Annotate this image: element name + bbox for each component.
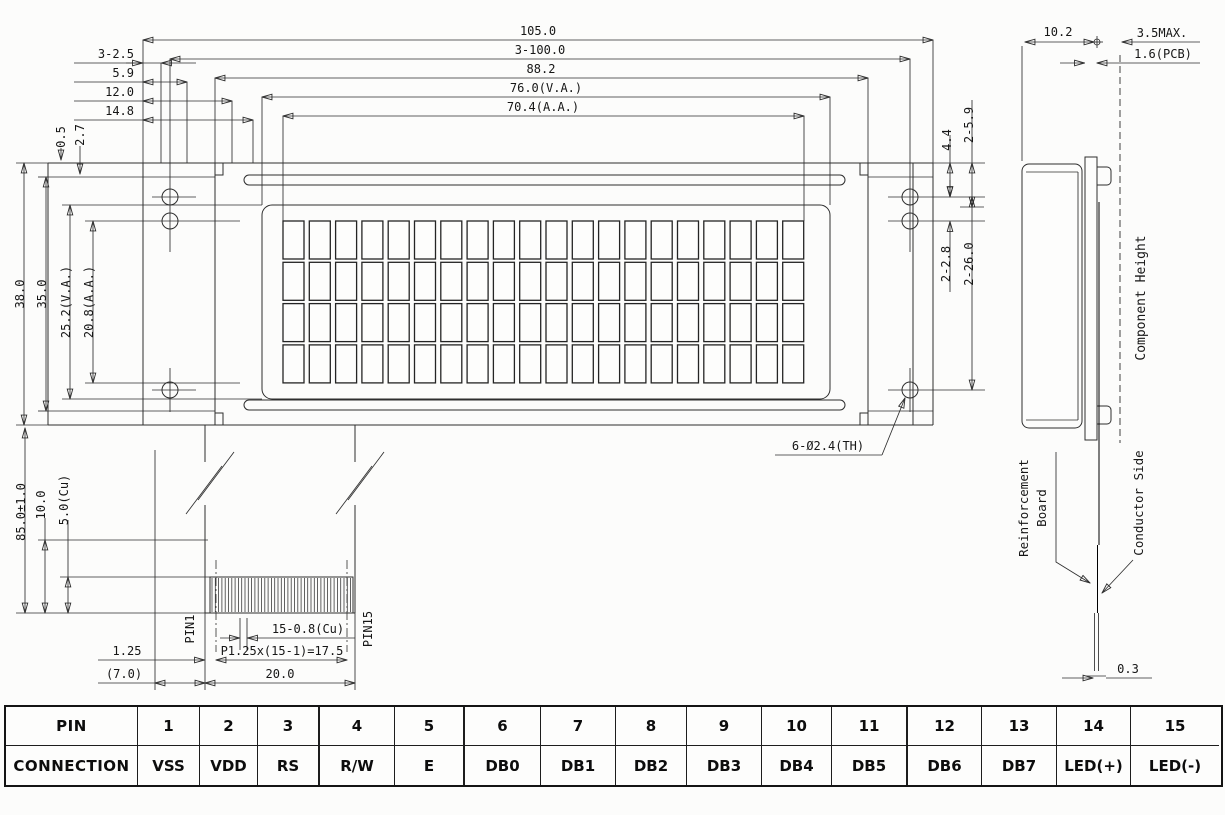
connection-name: LED(-) <box>1131 746 1219 785</box>
pin-connection-table: PIN 1 2 3 4 5 6 7 8 9 10 11 12 13 14 15 … <box>4 705 1223 787</box>
frame-slot-bottom <box>244 400 845 410</box>
dim-hole-span: 3-100.0 <box>515 43 566 57</box>
dim-tail-width: 20.0 <box>266 667 295 681</box>
dim-conductor-width: 15-0.8(Cu) <box>272 622 344 636</box>
pin-number: 14 <box>1057 707 1131 746</box>
side-view: 10.2 3.5MAX. 1.6(PCB) Component Height R… <box>1016 25 1200 678</box>
break-mark <box>348 452 384 500</box>
pin-number: 9 <box>687 707 762 746</box>
lcd-module-drawing: 105.0 3-100.0 88.2 76.0(V.A.) 70.4(A.A.)… <box>0 0 1225 706</box>
dim-viewing-area-width: 76.0(V.A.) <box>510 81 582 95</box>
pin-number: 1 <box>138 707 200 746</box>
conductor-leader <box>1102 560 1133 593</box>
connection-name: DB2 <box>616 746 687 785</box>
left-edge-dimensions: 3-2.5 5.9 12.0 14.8 0.5 2.7 <box>54 47 253 174</box>
dim-edge-14-8: 14.8 <box>105 104 134 118</box>
dim-hole-edge-offset: 3-2.5 <box>98 47 134 61</box>
pin-number: 6 <box>465 707 541 746</box>
dim-2-26-0: 2-26.0 <box>962 242 976 285</box>
component-height-label: Component Height <box>1134 235 1149 360</box>
pin-number: 3 <box>258 707 320 746</box>
connection-name: DB0 <box>465 746 541 785</box>
pin-number: 12 <box>908 707 982 746</box>
connection-name: DB6 <box>908 746 982 785</box>
dim-tail-exposed: 10.0 <box>34 491 48 520</box>
break-mark <box>186 466 222 514</box>
dim-component-height-max: 3.5MAX. <box>1137 26 1188 40</box>
dim-tail-plating: 5.0(Cu) <box>57 475 71 526</box>
connection-name: DB3 <box>687 746 762 785</box>
dim-overall-width: 105.0 <box>520 24 556 38</box>
dim-active-area-width: 70.4(A.A.) <box>507 100 579 114</box>
reinforcement-leader <box>1056 452 1090 583</box>
break-mark <box>336 466 372 514</box>
break-mark <box>198 452 234 500</box>
hole-callout-text: 6-Ø2.4(TH) <box>792 439 864 453</box>
connection-name: DB4 <box>762 746 832 785</box>
connection-name: E <box>395 746 465 785</box>
dim-pcb-width: 88.2 <box>527 62 556 76</box>
pin-number: 10 <box>762 707 832 746</box>
dim-micro-0-5: 0.5 <box>54 126 68 148</box>
connection-name: DB7 <box>982 746 1057 785</box>
pin-number: 5 <box>395 707 465 746</box>
left-vertical-dimensions: 38.0 35.0 25.2(V.A.) 20.8(A.A.) <box>13 163 262 425</box>
pin1-label: PIN1 <box>183 615 197 644</box>
drawing-sheet: 105.0 3-100.0 88.2 76.0(V.A.) 70.4(A.A.)… <box>0 0 1225 815</box>
fpc-tail-view: 85.0±1.0 10.0 5.0(Cu) PIN1 PIN15 15-0.8(… <box>14 425 384 690</box>
dim-pcb-thickness: 1.6(PCB) <box>1134 47 1192 61</box>
frame-slot-top <box>244 175 845 185</box>
connection-name: RS <box>258 746 320 785</box>
dim-4-4: 4.4 <box>940 129 954 151</box>
dim-2-5-9: 2-5.9 <box>962 107 976 143</box>
reinforcement-board-label-line2: Board <box>1034 489 1049 527</box>
connection-name: LED(+) <box>1057 746 1131 785</box>
dim-2-2-8: 2-2.8 <box>939 246 953 282</box>
character-grid-20x4 <box>283 221 804 383</box>
dim-edge-12-0: 12.0 <box>105 85 134 99</box>
dim-active-area-height: 20.8(A.A.) <box>82 266 96 338</box>
dim-frame-height: 35.0 <box>35 280 49 309</box>
dim-ref-width: (7.0) <box>106 667 142 681</box>
bezel-tab <box>1097 167 1111 185</box>
top-dimensions: 105.0 3-100.0 88.2 76.0(V.A.) 70.4(A.A.) <box>143 24 933 221</box>
pin-row-header: PIN <box>6 707 138 746</box>
pin-number: 4 <box>320 707 395 746</box>
pcb-notch <box>215 163 223 175</box>
fpc-contact-hatch <box>212 578 351 612</box>
lcd-body-profile <box>1022 164 1082 428</box>
pin15-label: PIN15 <box>361 611 375 647</box>
conductor-side-label: Conductor Side <box>1131 450 1146 555</box>
connection-name: DB5 <box>832 746 908 785</box>
connection-row-header: CONNECTION <box>6 746 138 785</box>
right-vertical-dimensions: 4.4 2-5.9 2-2.8 2-26.0 <box>888 100 985 390</box>
dim-edge-offset: 1.25 <box>113 644 142 658</box>
pin-number: 11 <box>832 707 908 746</box>
dim-viewing-area-height: 25.2(V.A.) <box>59 266 73 338</box>
pin-number: 13 <box>982 707 1057 746</box>
dim-micro-2-7: 2.7 <box>73 124 87 146</box>
dim-pitch-formula: P1.25x(15-1)=17.5 <box>221 644 344 658</box>
dim-overall-height: 38.0 <box>13 280 27 309</box>
pin-number: 8 <box>616 707 687 746</box>
connection-name: VSS <box>138 746 200 785</box>
pcb-notch <box>860 413 868 425</box>
pcb-profile <box>1085 157 1097 440</box>
dim-tail-overall-length: 85.0±1.0 <box>14 483 28 541</box>
dim-depth: 10.2 <box>1044 25 1073 39</box>
connection-name: R/W <box>320 746 395 785</box>
dim-tail-thickness: 0.3 <box>1117 662 1139 676</box>
pin-number: 2 <box>200 707 258 746</box>
pin-number: 7 <box>541 707 616 746</box>
pcb-notch <box>215 413 223 425</box>
hole-callout: 6-Ø2.4(TH) <box>775 398 905 455</box>
connection-name: DB1 <box>541 746 616 785</box>
connection-name: VDD <box>200 746 258 785</box>
dim-edge-5-9: 5.9 <box>112 66 134 80</box>
pcb-notch <box>860 163 868 175</box>
reinforcement-board-label-line1: Reinforcement <box>1016 459 1031 557</box>
pin-number: 15 <box>1131 707 1219 746</box>
